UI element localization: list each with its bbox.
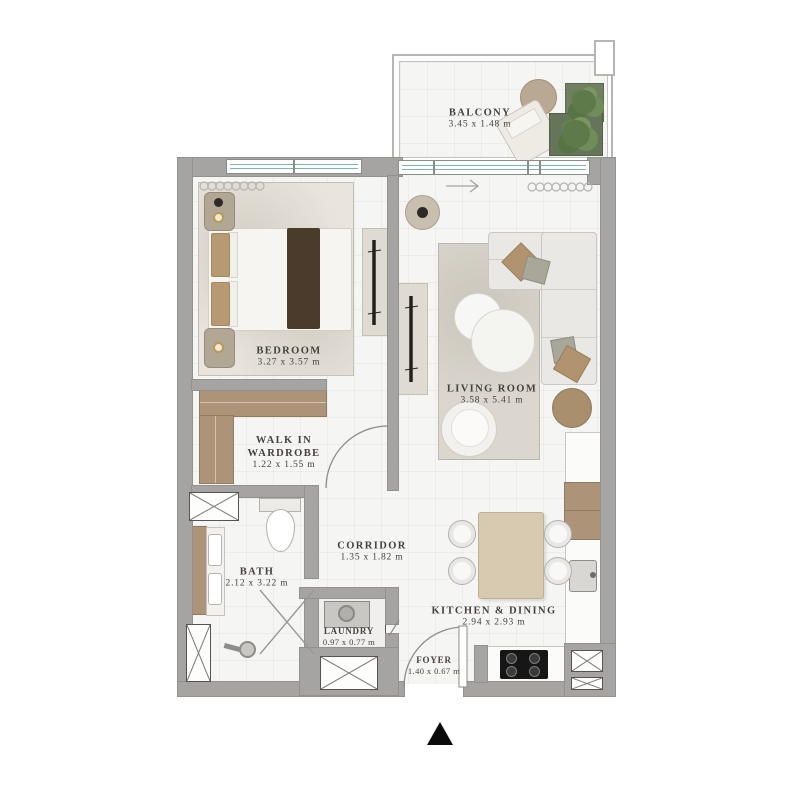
lamp-icon bbox=[213, 342, 224, 353]
wall-laundry-top bbox=[300, 588, 388, 598]
window-mullion bbox=[527, 161, 529, 174]
coffee-table-large bbox=[471, 309, 535, 373]
plant-icon bbox=[572, 90, 596, 114]
dining-chair bbox=[448, 557, 476, 585]
nightstand bbox=[204, 192, 235, 231]
wall-laundry-left bbox=[305, 598, 318, 650]
room-dims: 3.27 x 3.57 m bbox=[256, 358, 321, 370]
room-dims: 3.45 x 1.48 m bbox=[449, 120, 512, 132]
dining-chair bbox=[544, 557, 572, 585]
wall-kitchen-stub bbox=[475, 646, 487, 682]
wardrobe-unit-left bbox=[200, 416, 233, 483]
room-dims: 1.40 x 0.67 m bbox=[408, 666, 460, 677]
foyer-label: FOYER 1.40 x 0.67 m bbox=[408, 655, 460, 677]
bed-throw-blanket bbox=[287, 228, 320, 329]
plant-icon bbox=[562, 120, 590, 148]
burner-icon bbox=[529, 653, 540, 664]
room-dims: 2.94 x 2.93 m bbox=[431, 618, 556, 630]
shower-head-icon bbox=[239, 641, 256, 658]
bed-pillow bbox=[211, 233, 230, 277]
dining-chair bbox=[448, 520, 476, 548]
cooktop bbox=[500, 650, 548, 679]
window-mullion bbox=[433, 161, 435, 174]
sink-basin bbox=[208, 534, 222, 566]
balcony-column bbox=[594, 40, 615, 76]
lamp-icon bbox=[213, 212, 224, 223]
burner-icon bbox=[506, 666, 517, 677]
wall-bedroom-living bbox=[388, 176, 398, 490]
wall-right bbox=[601, 158, 615, 696]
room-name: LAUNDRY bbox=[323, 626, 375, 637]
wall-wardrobe-top bbox=[192, 380, 326, 390]
window-glass bbox=[402, 165, 586, 170]
vanity-wood bbox=[192, 527, 206, 614]
wardrobe-label: WALK IN WARDROBE 1.22 x 1.55 m bbox=[247, 434, 320, 472]
room-name: LIVING ROOM bbox=[447, 383, 537, 396]
shaft-box bbox=[186, 624, 211, 682]
dining-table bbox=[478, 512, 544, 599]
plant-center bbox=[417, 207, 428, 218]
window-mullion bbox=[293, 160, 295, 173]
lamp-icon bbox=[214, 198, 223, 207]
room-name: CORRIDOR bbox=[337, 540, 407, 553]
apartment-floor-plan: BALCONY 3.45 x 1.48 m BEDROOM 3.27 x 3.5… bbox=[0, 0, 800, 800]
room-name: WARDROBE bbox=[247, 447, 320, 460]
wardrobe-unit-top bbox=[200, 390, 326, 416]
burner-icon bbox=[506, 653, 517, 664]
shaft-box bbox=[320, 656, 378, 690]
shaft-box bbox=[571, 677, 603, 690]
faucet-icon bbox=[590, 572, 596, 578]
sofa-seam bbox=[542, 289, 596, 290]
washer-drum bbox=[338, 605, 355, 622]
bath-label: BATH 2.12 x 3.22 m bbox=[226, 566, 289, 591]
room-dims: 3.58 x 5.41 m bbox=[447, 396, 537, 408]
wall-left bbox=[178, 158, 192, 696]
kitchen-dining-label: KITCHEN & DINING 2.94 x 2.93 m bbox=[431, 605, 556, 630]
room-name: BALCONY bbox=[449, 107, 512, 120]
shaft-box bbox=[189, 492, 239, 521]
armchair bbox=[441, 401, 497, 457]
wardrobe-rail bbox=[215, 416, 216, 483]
living-room-label: LIVING ROOM 3.58 x 5.41 m bbox=[447, 383, 537, 408]
kitchen-sink bbox=[569, 560, 597, 592]
washing-machine bbox=[324, 601, 370, 628]
bedroom-label: BEDROOM 3.27 x 3.57 m bbox=[256, 345, 321, 370]
balcony-sliding-door bbox=[398, 160, 590, 175]
laundry-label: LAUNDRY 0.97 x 0.77 m bbox=[323, 626, 375, 648]
room-dims: 1.35 x 1.82 m bbox=[337, 553, 407, 565]
corridor-label: CORRIDOR 1.35 x 1.82 m bbox=[337, 540, 407, 565]
burner-icon bbox=[529, 666, 540, 677]
plant-pot-icon bbox=[405, 195, 440, 230]
room-name: WALK IN bbox=[247, 434, 320, 447]
bedroom-window bbox=[226, 159, 362, 174]
window-mullion bbox=[539, 161, 541, 174]
room-name: FOYER bbox=[408, 655, 460, 666]
room-name: BATH bbox=[226, 566, 289, 579]
dining-chair bbox=[544, 520, 572, 548]
wall-bath-right bbox=[305, 486, 318, 578]
side-table-wood bbox=[552, 388, 592, 428]
entrance-arrow-marker bbox=[427, 722, 453, 745]
room-dims: 0.97 x 0.77 m bbox=[323, 637, 375, 648]
balcony-label: BALCONY 3.45 x 1.48 m bbox=[449, 107, 512, 132]
nightstand bbox=[204, 328, 235, 368]
room-name: BEDROOM bbox=[256, 345, 321, 358]
room-dims: 1.22 x 1.55 m bbox=[247, 460, 320, 472]
bed-pillow bbox=[211, 282, 230, 326]
wardrobe-rail bbox=[200, 402, 326, 403]
armchair-seat bbox=[451, 409, 489, 447]
bedroom-tv-console bbox=[362, 228, 390, 336]
sink-basin bbox=[208, 573, 222, 605]
room-name: KITCHEN & DINING bbox=[431, 605, 556, 618]
cabinet-divider bbox=[565, 510, 601, 511]
wall-laundry-right-upper bbox=[386, 588, 398, 624]
room-dims: 2.12 x 3.22 m bbox=[226, 579, 289, 591]
shaft-box bbox=[571, 650, 603, 672]
living-tv-console bbox=[398, 283, 428, 395]
